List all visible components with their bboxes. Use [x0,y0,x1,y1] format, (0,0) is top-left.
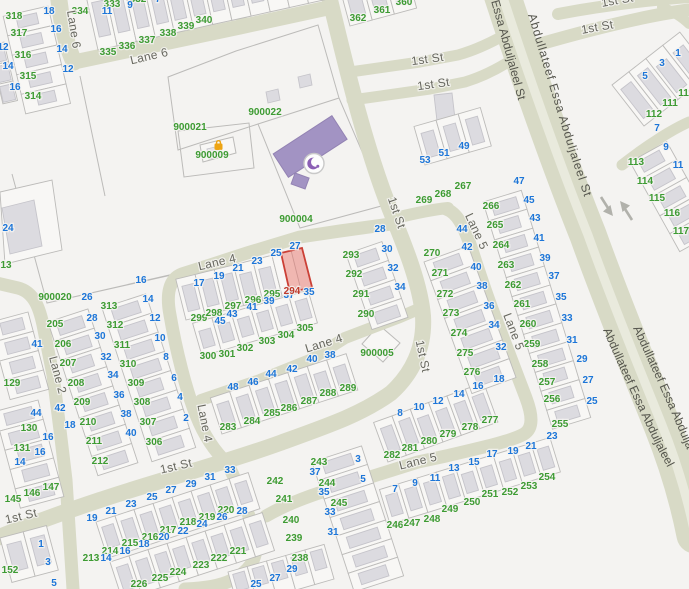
svg-text:208: 208 [68,378,85,389]
svg-text:266: 266 [483,201,500,212]
svg-text:21: 21 [525,441,537,452]
svg-text:21: 21 [105,506,117,517]
svg-text:39: 39 [263,296,275,307]
svg-text:8: 8 [397,408,403,419]
svg-text:271: 271 [432,268,449,279]
svg-text:306: 306 [146,437,163,448]
svg-text:20: 20 [158,532,170,543]
svg-text:12: 12 [432,396,444,407]
svg-text:14: 14 [14,457,26,468]
svg-text:112: 112 [646,109,663,120]
svg-text:111: 111 [678,88,689,99]
svg-text:48: 48 [227,382,239,393]
svg-text:35: 35 [555,292,567,303]
svg-text:272: 272 [437,289,454,300]
svg-text:33: 33 [224,465,236,476]
svg-text:37: 37 [309,467,321,478]
svg-text:18: 18 [138,539,150,550]
svg-text:278: 278 [462,422,479,433]
svg-text:280: 280 [421,436,438,447]
svg-text:5: 5 [51,578,57,589]
svg-text:17: 17 [193,278,205,289]
svg-text:23: 23 [546,431,558,442]
svg-text:287: 287 [301,396,318,407]
svg-text:33: 33 [324,507,336,518]
svg-text:275: 275 [457,348,474,359]
svg-text:16: 16 [9,82,21,93]
svg-text:258: 258 [532,359,549,370]
svg-text:42: 42 [54,403,66,414]
svg-text:16: 16 [42,432,54,443]
svg-text:22: 22 [177,526,189,537]
svg-text:24: 24 [2,223,14,234]
svg-text:36: 36 [483,301,495,312]
svg-text:53: 53 [419,155,431,166]
svg-text:314: 314 [25,91,42,102]
svg-text:241: 241 [276,494,293,505]
svg-text:39: 39 [539,253,551,264]
svg-text:12: 12 [149,313,161,324]
svg-text:130: 130 [21,423,38,434]
svg-text:14: 14 [453,389,465,400]
svg-text:115: 115 [649,193,666,204]
svg-text:30: 30 [381,244,393,255]
svg-text:254: 254 [539,472,556,483]
svg-text:206: 206 [55,339,72,350]
svg-text:44: 44 [265,369,277,380]
svg-text:291: 291 [353,289,370,300]
svg-text:223: 223 [193,560,210,571]
svg-text:246: 246 [387,520,404,531]
svg-text:31: 31 [566,335,578,346]
svg-text:256: 256 [544,394,561,405]
svg-text:16: 16 [50,24,62,35]
svg-text:239: 239 [286,533,303,544]
svg-text:9: 9 [412,478,418,489]
svg-text:34: 34 [394,282,406,293]
svg-text:5: 5 [360,474,366,485]
svg-text:340: 340 [196,15,213,26]
svg-text:318: 318 [6,11,23,22]
svg-text:45: 45 [523,195,535,206]
svg-text:43: 43 [529,213,541,224]
svg-text:40: 40 [125,428,137,439]
svg-text:312: 312 [107,320,124,331]
svg-text:13: 13 [448,463,460,474]
svg-text:43: 43 [226,309,238,320]
svg-text:211: 211 [86,436,103,447]
svg-text:253: 253 [521,481,538,492]
svg-text:263: 263 [498,260,515,271]
svg-text:16: 16 [135,275,147,286]
svg-text:5: 5 [642,71,648,82]
svg-text:32: 32 [100,352,112,363]
svg-text:281: 281 [402,443,419,454]
svg-text:34: 34 [107,370,119,381]
svg-text:41: 41 [31,339,43,350]
svg-text:146: 146 [24,488,41,499]
svg-text:315: 315 [20,71,37,82]
svg-text:34: 34 [488,320,500,331]
svg-text:238: 238 [292,553,309,564]
svg-text:205: 205 [47,319,64,330]
svg-text:3: 3 [659,58,665,69]
svg-text:25: 25 [270,248,282,259]
svg-text:10: 10 [154,333,166,344]
svg-text:337: 337 [139,35,156,46]
svg-text:16: 16 [472,381,484,392]
svg-text:305: 305 [297,323,314,334]
svg-text:294: 294 [284,286,301,297]
svg-text:361: 361 [374,5,391,16]
svg-text:25: 25 [586,396,598,407]
svg-text:111: 111 [662,98,678,109]
svg-text:284: 284 [244,416,261,427]
svg-text:147: 147 [43,482,60,493]
svg-text:257: 257 [539,377,556,388]
svg-text:33: 33 [561,313,573,324]
svg-text:274: 274 [451,328,468,339]
svg-text:362: 362 [350,13,367,24]
svg-text:25: 25 [146,492,158,503]
svg-text:285: 285 [264,408,281,419]
svg-text:338: 338 [160,28,177,39]
svg-text:248: 248 [424,514,441,525]
svg-text:260: 260 [520,319,537,330]
svg-text:262: 262 [505,280,522,291]
svg-text:6: 6 [171,373,177,384]
svg-text:313: 313 [101,301,118,312]
svg-text:31: 31 [204,472,216,483]
svg-text:47: 47 [513,176,525,187]
svg-text:339: 339 [178,21,195,32]
svg-text:247: 247 [404,518,421,529]
svg-text:12: 12 [0,42,9,53]
svg-text:129: 129 [4,378,21,389]
svg-text:14: 14 [142,294,154,305]
svg-text:336: 336 [119,41,136,52]
svg-text:10: 10 [413,402,425,413]
svg-text:26: 26 [216,512,228,523]
svg-text:2: 2 [183,413,189,424]
svg-text:209: 209 [74,397,91,408]
svg-text:27: 27 [582,375,594,386]
svg-text:45: 45 [214,316,226,327]
svg-text:42: 42 [286,364,298,375]
svg-text:11: 11 [102,6,113,17]
svg-text:277: 277 [482,415,499,426]
svg-text:8: 8 [163,352,169,363]
svg-text:267: 267 [455,181,472,192]
svg-text:360: 360 [396,0,413,8]
svg-text:255: 255 [552,419,569,430]
svg-text:279: 279 [440,429,457,440]
svg-text:16: 16 [34,447,46,458]
svg-text:41: 41 [246,302,258,313]
svg-text:264: 264 [493,240,510,251]
svg-text:300: 300 [200,351,217,362]
svg-text:900009: 900009 [195,150,229,161]
svg-text:273: 273 [443,308,460,319]
svg-text:41: 41 [533,233,545,244]
svg-text:46: 46 [247,377,259,388]
svg-text:316: 316 [15,50,32,61]
svg-text:900022: 900022 [248,107,282,118]
svg-text:42: 42 [461,242,473,253]
svg-text:900004: 900004 [279,214,313,225]
svg-text:28: 28 [86,313,98,324]
svg-text:11: 11 [673,160,684,171]
svg-text:303: 303 [259,336,276,347]
svg-text:9: 9 [663,142,669,153]
svg-text:51: 51 [438,148,450,159]
svg-text:900020: 900020 [38,292,72,303]
svg-text:1: 1 [675,48,681,59]
svg-text:23: 23 [251,256,263,267]
svg-text:292: 292 [346,269,363,280]
svg-text:7: 7 [155,0,161,5]
svg-text:29: 29 [286,564,298,575]
svg-text:11: 11 [430,473,441,484]
svg-text:222: 222 [211,553,228,564]
svg-text:283: 283 [220,422,237,433]
svg-text:242: 242 [267,476,284,487]
svg-text:36: 36 [113,390,125,401]
svg-text:293: 293 [343,250,360,261]
svg-text:18: 18 [64,420,76,431]
svg-text:27: 27 [165,485,177,496]
svg-text:27: 27 [289,241,301,252]
svg-text:261: 261 [514,299,531,310]
svg-text:9: 9 [127,0,133,11]
svg-text:221: 221 [230,546,247,557]
svg-text:224: 224 [170,567,187,578]
svg-text:13: 13 [0,260,12,271]
svg-text:900021: 900021 [173,122,207,133]
svg-text:16: 16 [119,546,131,557]
svg-text:270: 270 [424,248,441,259]
svg-text:289: 289 [340,383,357,394]
svg-text:30: 30 [94,331,106,342]
svg-text:145: 145 [5,494,22,505]
svg-text:44: 44 [30,408,42,419]
svg-text:311: 311 [114,340,131,351]
svg-text:226: 226 [131,579,148,589]
svg-text:269: 269 [416,195,433,206]
svg-text:301: 301 [219,349,236,360]
svg-text:23: 23 [125,499,137,510]
svg-text:212: 212 [92,456,109,467]
svg-text:113: 113 [628,157,645,168]
svg-text:27: 27 [269,573,281,584]
svg-text:35: 35 [303,287,315,298]
svg-text:3: 3 [355,454,361,465]
svg-text:37: 37 [548,271,560,282]
svg-text:29: 29 [185,479,197,490]
svg-text:304: 304 [278,330,295,341]
svg-text:240: 240 [283,515,300,526]
svg-text:17: 17 [486,449,498,460]
svg-text:276: 276 [464,367,481,378]
svg-text:1: 1 [38,539,44,550]
svg-text:29: 29 [576,354,588,365]
svg-text:28: 28 [236,506,248,517]
svg-text:38: 38 [324,350,336,361]
svg-text:31: 31 [327,527,339,538]
svg-text:268: 268 [435,189,452,200]
svg-text:335: 335 [100,47,117,58]
svg-text:32: 32 [387,263,399,274]
svg-text:265: 265 [487,220,504,231]
svg-text:317: 317 [11,28,28,39]
svg-text:18: 18 [43,6,55,17]
svg-text:15: 15 [468,457,480,468]
svg-text:18: 18 [493,374,505,385]
svg-text:14: 14 [2,61,14,72]
svg-text:210: 210 [80,417,97,428]
svg-text:288: 288 [320,388,337,399]
svg-text:4: 4 [177,392,183,403]
svg-text:26: 26 [81,292,93,303]
svg-text:32: 32 [495,342,507,353]
svg-text:290: 290 [358,309,375,320]
svg-text:131: 131 [14,443,31,454]
svg-text:310: 310 [120,359,137,370]
svg-text:14: 14 [100,553,112,564]
svg-text:114: 114 [637,176,654,187]
svg-text:25: 25 [250,579,262,589]
svg-text:309: 309 [128,378,145,389]
svg-text:152: 152 [2,565,19,576]
svg-text:35: 35 [318,487,330,498]
svg-text:49: 49 [458,141,470,152]
svg-text:117: 117 [673,226,689,237]
svg-text:249: 249 [442,504,459,515]
svg-text:251: 251 [482,489,499,500]
svg-text:286: 286 [281,403,298,414]
svg-text:116: 116 [664,208,681,219]
svg-text:213: 213 [83,553,100,564]
svg-text:307: 307 [140,417,157,428]
svg-text:308: 308 [134,397,151,408]
svg-text:40: 40 [306,354,318,365]
svg-text:14: 14 [56,44,68,55]
svg-text:12: 12 [62,64,74,75]
svg-text:900005: 900005 [360,348,394,359]
svg-text:252: 252 [502,487,519,498]
svg-text:3: 3 [45,557,51,568]
svg-text:38: 38 [120,409,132,420]
svg-text:28: 28 [374,224,386,235]
svg-text:19: 19 [213,271,225,282]
svg-text:7: 7 [392,484,398,495]
svg-text:40: 40 [470,262,482,273]
svg-text:19: 19 [507,446,519,457]
svg-text:302: 302 [237,343,254,354]
svg-text:225: 225 [152,573,169,584]
svg-text:19: 19 [86,513,98,524]
svg-text:24: 24 [196,519,208,530]
svg-text:38: 38 [476,281,488,292]
svg-text:250: 250 [464,497,481,508]
svg-text:7: 7 [654,123,660,134]
